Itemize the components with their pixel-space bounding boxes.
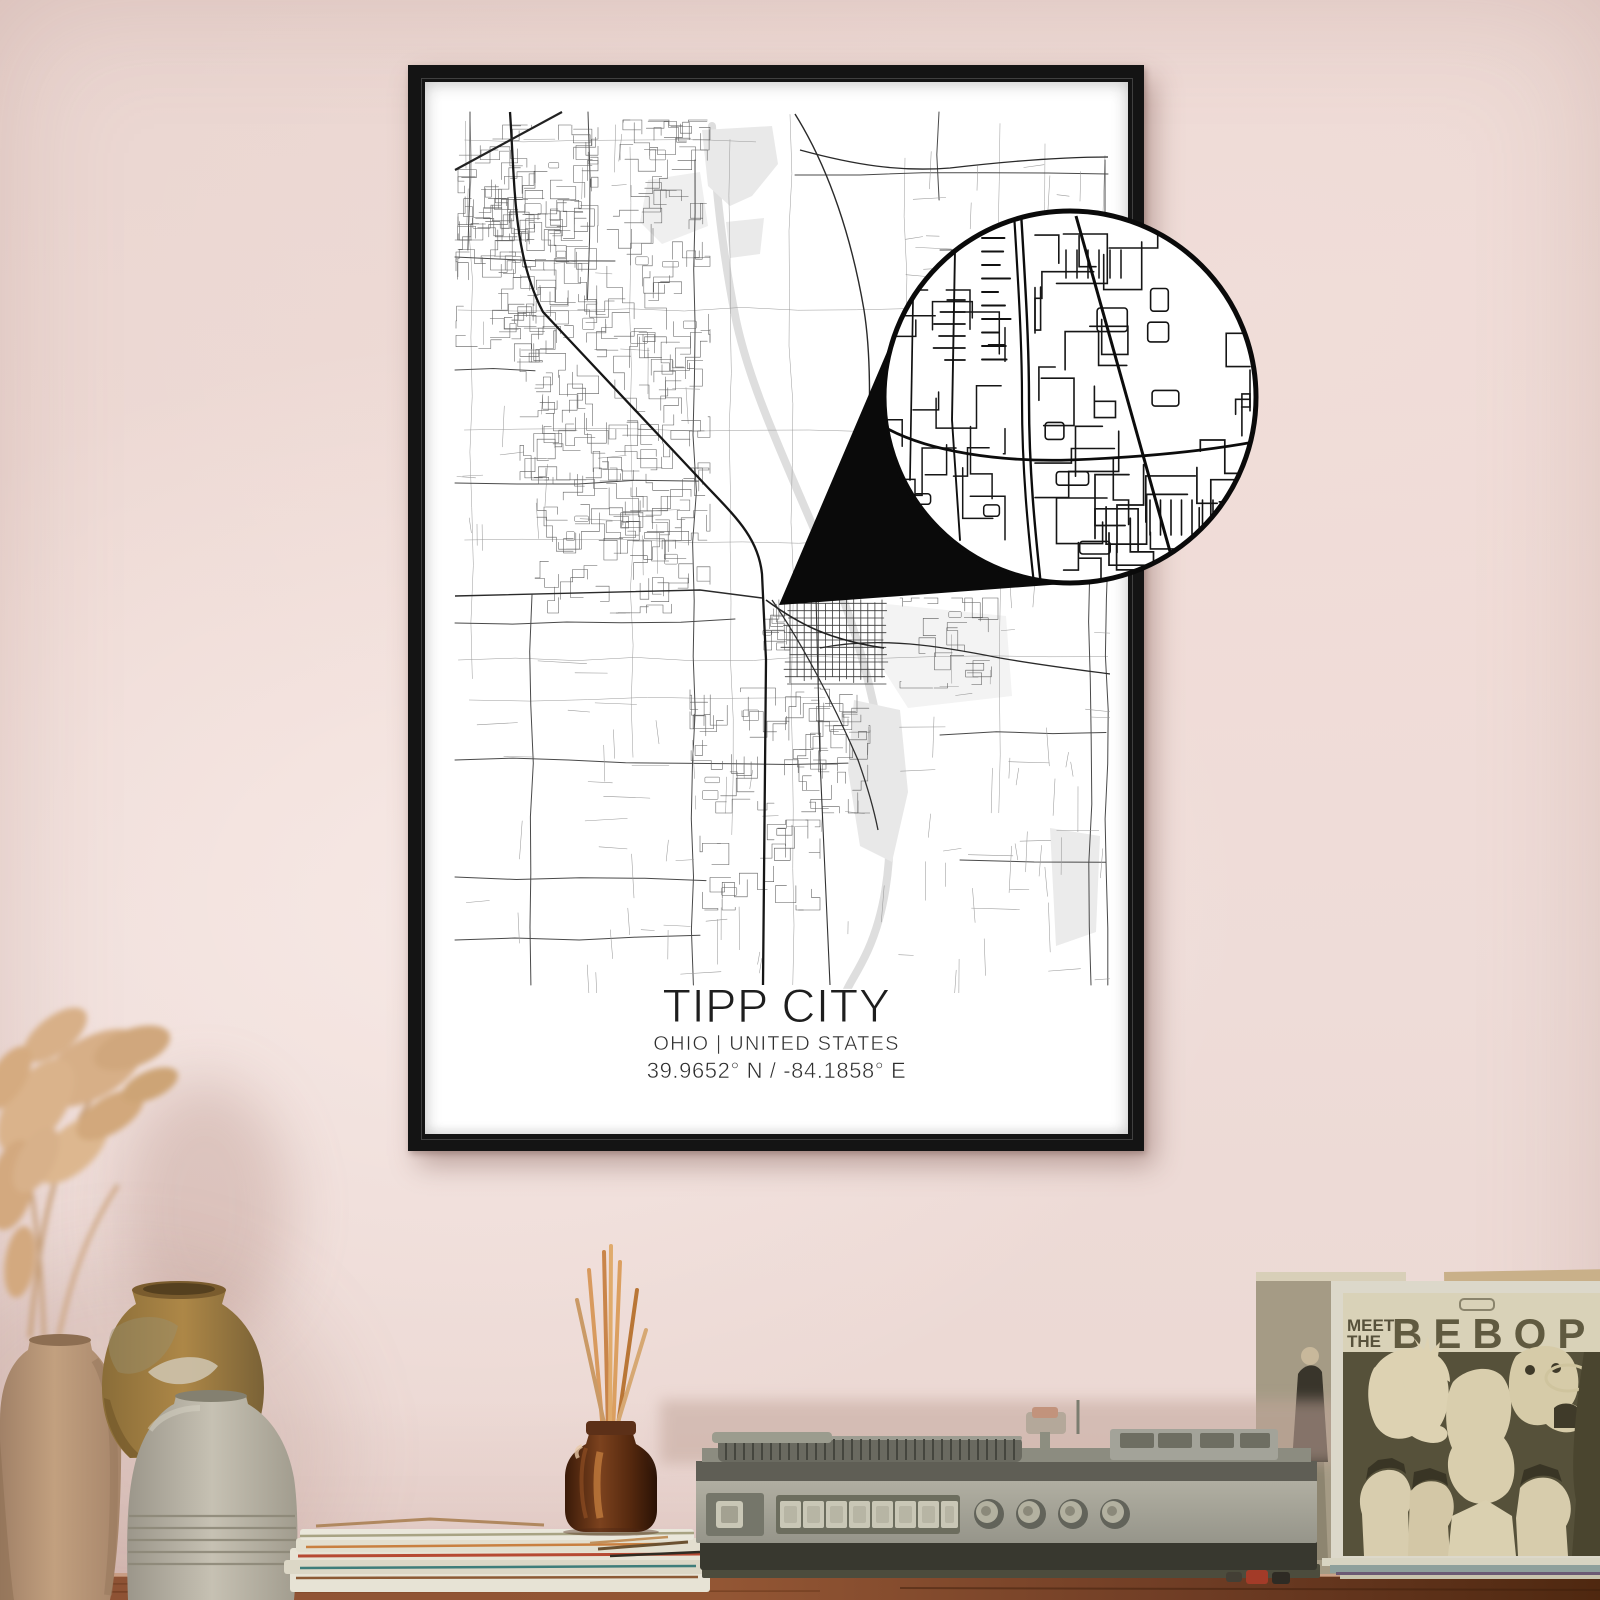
- svg-text:THE: THE: [1347, 1332, 1381, 1351]
